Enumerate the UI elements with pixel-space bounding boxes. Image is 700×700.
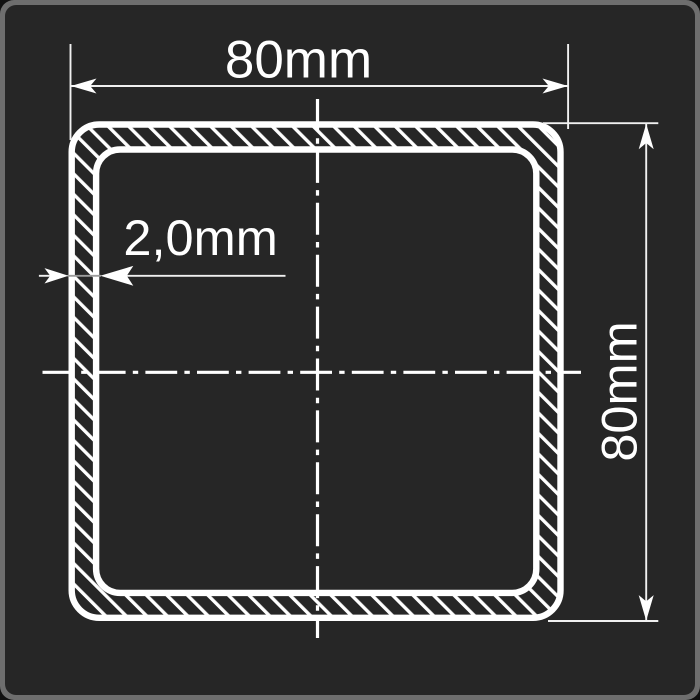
svg-text:2,0mm: 2,0mm (123, 209, 277, 266)
svg-text:80mm: 80mm (225, 31, 372, 90)
svg-text:80mm: 80mm (590, 321, 647, 461)
